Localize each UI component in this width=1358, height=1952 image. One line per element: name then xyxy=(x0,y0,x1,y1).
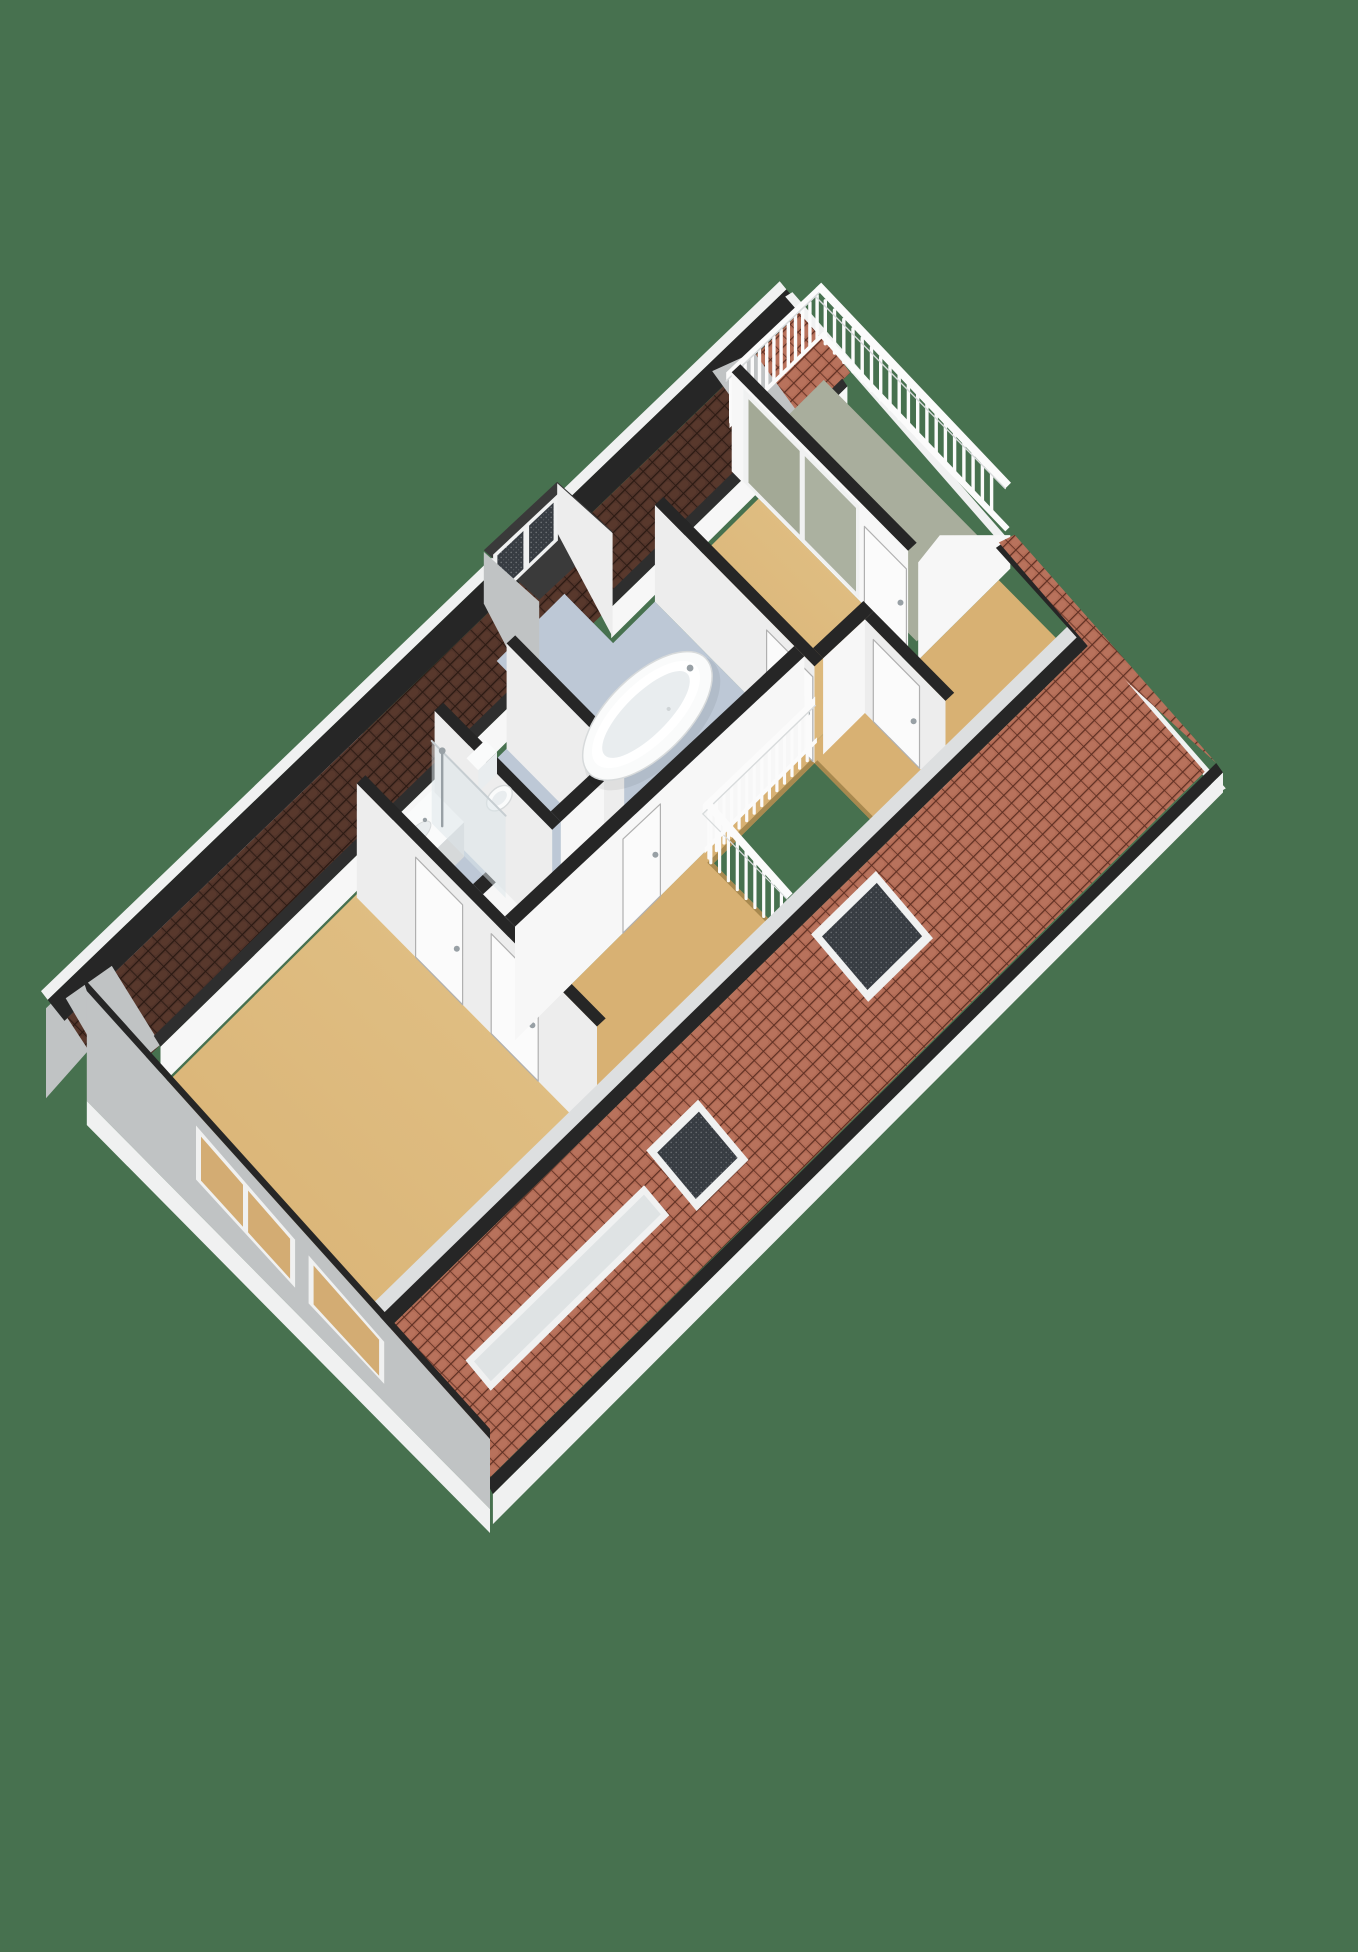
floorplan-3d-figure xyxy=(40,16,1358,1936)
floorplan-3d-svg xyxy=(40,16,1358,1936)
shower-head xyxy=(439,747,446,754)
